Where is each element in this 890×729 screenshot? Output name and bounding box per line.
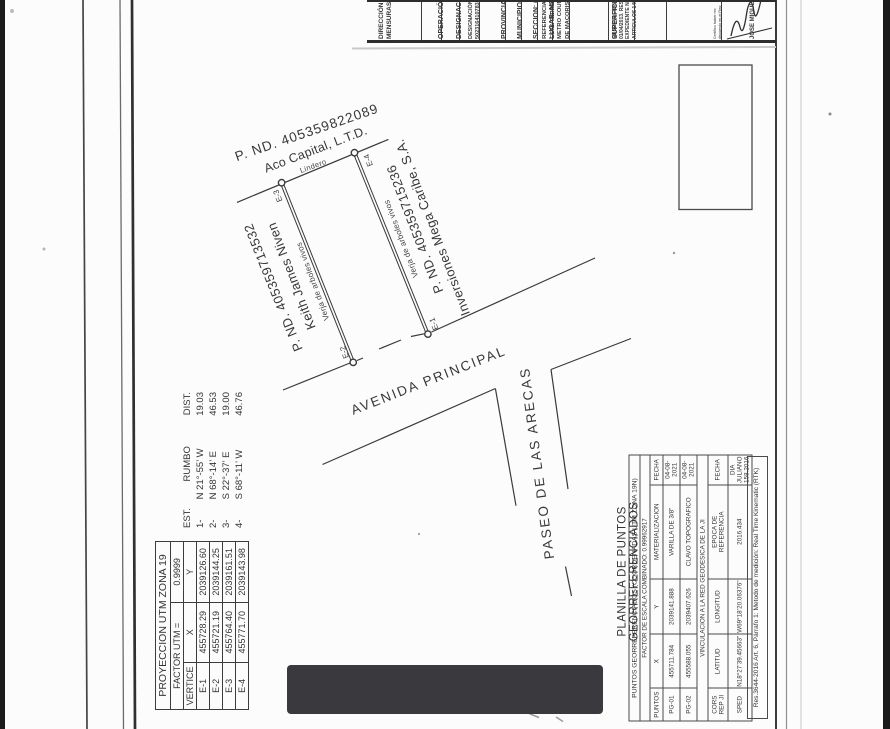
svg-text:E-4: E-4	[362, 152, 375, 167]
svg-text:PASEO DE LAS ARECAS: PASEO DE LAS ARECAS	[517, 366, 557, 560]
svg-text:AVENIDA PRINCIPAL: AVENIDA PRINCIPAL	[349, 343, 509, 418]
svg-text:E-3: E-3	[271, 188, 284, 203]
svg-text:E-1: E-1	[427, 316, 440, 331]
